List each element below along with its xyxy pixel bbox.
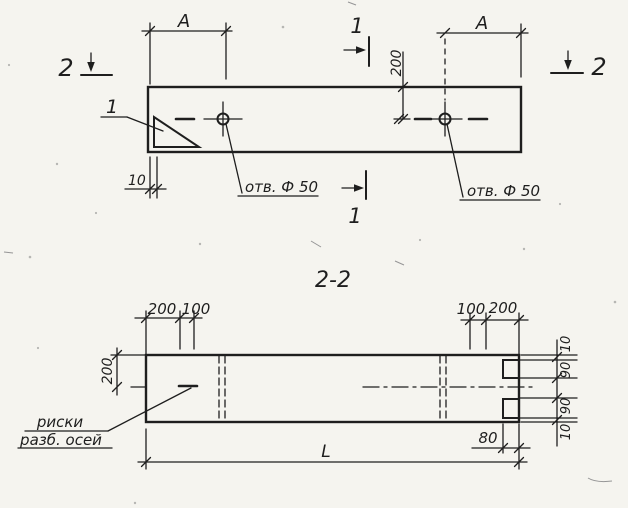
dim-label: A [475, 13, 488, 34]
section-mark-2-left: 2 [58, 53, 112, 82]
dim-a-left: A [142, 11, 232, 84]
dim-10-edge: 10 [125, 157, 166, 198]
dim-label: 10 [128, 173, 146, 189]
section-mark-2-right: 2 [551, 51, 607, 81]
dim-label: 200 [489, 299, 518, 317]
section-title: 2-2 [315, 268, 351, 293]
hole-note-left: отв. Ф 50 [226, 124, 318, 196]
top-view: 1 A [58, 11, 606, 228]
section-label: 2 [58, 54, 73, 82]
dim-chain-right: 10 90 90 10 [519, 336, 577, 446]
note-label: разб. осей [19, 431, 102, 449]
drawing-sheet: 1 A [0, 0, 628, 508]
section-label: 2 [591, 53, 606, 81]
drawing-canvas: 1 A [0, 0, 628, 508]
hidden-edge-left [219, 356, 225, 421]
dim-label: 10 [559, 424, 574, 441]
hole-left [176, 102, 242, 136]
hole-right [394, 102, 487, 136]
paper-speckles [4, 2, 616, 504]
dim-label: A [177, 11, 190, 32]
beam-section-outline [146, 355, 519, 422]
section-label: 1 [350, 14, 363, 38]
note-label: отв. Ф 50 [245, 178, 318, 196]
dim-label: 10 [559, 336, 574, 353]
dim-100-200-right: 100 200 [457, 299, 528, 354]
note-label: отв. Ф 50 [467, 182, 540, 200]
section-mark-1-bottom: 1 [342, 171, 366, 228]
section-mark-1-top: 1 [344, 14, 369, 66]
note-label: риски [36, 413, 84, 431]
dim-label: 200 [148, 300, 177, 318]
dim-label: 90 [559, 362, 574, 379]
dim-80: 80 [472, 424, 530, 453]
axis-note: риски разб. осей [18, 388, 191, 449]
dim-length-L: L [138, 424, 527, 469]
dim-label: 80 [478, 429, 497, 447]
dim-label: L [321, 442, 330, 462]
notch-bottom [503, 399, 519, 418]
dim-label: 90 [559, 398, 574, 415]
arrow-down-icon [87, 62, 95, 72]
dim-label: 100 [182, 300, 211, 318]
notch-top [503, 360, 519, 378]
dim-200-100-left: 200 100 [135, 300, 210, 354]
dim-200-height: 200 [100, 348, 146, 395]
arrow-right-icon [356, 46, 366, 54]
hidden-edge-right [440, 356, 446, 421]
hole-note-right: отв. Ф 50 [447, 124, 540, 200]
arrow-right-icon [354, 184, 364, 192]
dim-label: 100 [457, 300, 486, 318]
section-view-2-2: 2-2 риски разб. осей [18, 268, 577, 469]
section-label: 1 [348, 204, 361, 228]
callout-label: 1 [106, 96, 118, 118]
arrow-down-icon [564, 60, 572, 70]
dim-label: 200 [389, 50, 405, 77]
dim-label: 200 [100, 358, 116, 385]
corner-chamfer-triangle [154, 117, 199, 147]
